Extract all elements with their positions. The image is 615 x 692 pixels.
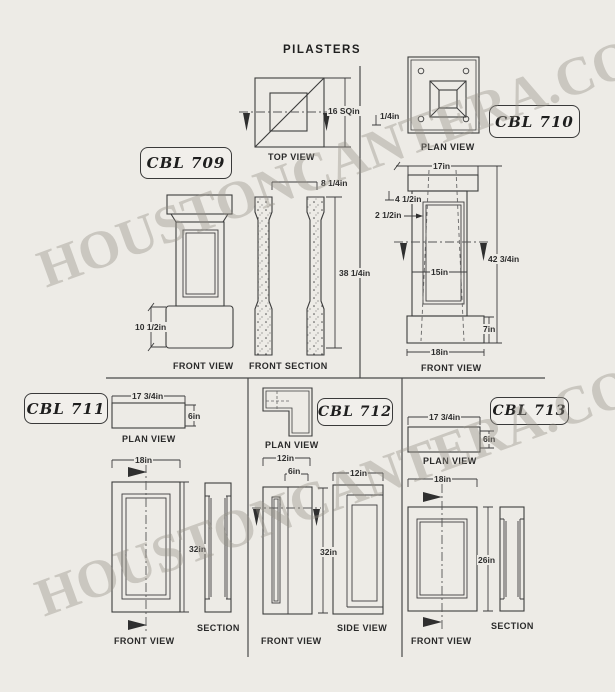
cut-arrow-bottom	[423, 617, 442, 627]
cut-arrow-top	[128, 467, 147, 477]
front-strip-inner	[274, 499, 278, 601]
taper-dashed-right	[456, 170, 464, 341]
base	[166, 306, 233, 348]
section-bar-right	[307, 197, 324, 355]
panel-outer	[423, 202, 464, 304]
cap	[408, 175, 478, 191]
catalog-page: PILASTERS CBL 709 CBL 710 CBL 711 CBL 71…	[0, 0, 615, 692]
dim-711-plan-depth: 6in	[187, 411, 201, 421]
view-label-side-view-712: SIDE VIEW	[337, 623, 387, 633]
bolt-hole	[418, 116, 424, 122]
panel-inner	[426, 205, 461, 301]
plan-hidden-lines	[266, 391, 290, 410]
base	[407, 316, 484, 343]
cbl709-front-section-drawing	[255, 182, 342, 355]
dim-711-width: 18in	[134, 455, 153, 465]
view-label-top-view-709: TOP VIEW	[268, 152, 315, 162]
cap	[167, 195, 232, 214]
view-label-front-view-712: FRONT VIEW	[261, 636, 322, 646]
dim-710-cap-height: 4 1/2in	[394, 194, 422, 204]
view-label-front-view-709: FRONT VIEW	[173, 361, 234, 371]
view-label-section-711: SECTION	[197, 623, 240, 633]
dim-711-plan-width: 17 3/4in	[131, 391, 164, 401]
diagonal-line	[255, 78, 324, 147]
dim-710-overall-height: 42 3/4in	[487, 254, 520, 264]
cbl713-drawing	[408, 417, 524, 631]
view-label-front-section-709: FRONT SECTION	[249, 361, 328, 371]
bolt-hole	[418, 68, 424, 74]
view-label-plan-view-712: PLAN VIEW	[265, 440, 319, 450]
dim-711-height: 32in	[188, 544, 207, 554]
pyramid-inner	[439, 90, 457, 108]
dim-712-height: 32in	[319, 547, 338, 557]
dim-710-panel-width: 15in	[430, 267, 449, 277]
model-label-cbl710: CBL 710	[489, 105, 580, 138]
view-label-front-view-711: FRONT VIEW	[114, 636, 175, 646]
plan-corner-outer	[263, 388, 312, 436]
cap-height-leader	[385, 191, 394, 200]
dim-710-edge: 1/4in	[379, 111, 400, 121]
bolt-hole	[463, 68, 469, 74]
drawing-canvas	[0, 0, 615, 692]
side-outer	[333, 485, 383, 614]
section-bar-left	[255, 197, 272, 355]
view-label-plan-view-713: PLAN VIEW	[423, 456, 477, 466]
front-outer	[263, 487, 312, 614]
dim-709-section-width: 8 1/4in	[320, 178, 348, 188]
cbl711-drawing	[112, 396, 231, 632]
cut-arrow-bottom	[128, 620, 147, 630]
plan-rect	[112, 403, 185, 428]
section-detail	[205, 496, 231, 599]
cut-arrow-left	[253, 509, 260, 526]
dim-712-width: 12in	[276, 453, 295, 463]
model-label-cbl711: CBL 711	[24, 393, 108, 424]
dim-709-area: 16 SQin	[327, 106, 361, 116]
model-label-cbl712: CBL 712	[317, 398, 393, 426]
front-strip-outer	[272, 497, 280, 603]
view-label-plan-view-711: PLAN VIEW	[122, 434, 176, 444]
view-label-plan-view-710: PLAN VIEW	[421, 142, 475, 152]
dim-712-side-width: 12in	[349, 468, 368, 478]
cut-arrow-left	[243, 113, 250, 131]
dim-709-base-height: 10 1/2in	[134, 322, 167, 332]
model-label-cbl709: CBL 709	[140, 147, 232, 179]
pyramid-corners	[430, 81, 466, 117]
wall-leader-arrow	[416, 214, 423, 219]
dim-710-base-width: 18in	[430, 347, 449, 357]
cut-arrow-top	[423, 492, 442, 502]
side-panel	[352, 505, 377, 601]
page-title: PILASTERS	[283, 44, 361, 56]
panel-inner	[126, 498, 166, 595]
dim-710-base-height: 7in	[482, 324, 496, 334]
view-label-front-view-710: FRONT VIEW	[421, 363, 482, 373]
panel-inner	[186, 233, 215, 294]
dim-713-plan-depth: 6in	[482, 434, 496, 444]
dim-712-face: 6in	[287, 466, 301, 476]
model-label-cbl713: CBL 713	[490, 397, 569, 425]
dim-710-wall: 2 1/2in	[374, 210, 402, 220]
view-label-section-713: SECTION	[491, 621, 534, 631]
body	[412, 191, 467, 316]
dim-713-plan-width: 17 3/4in	[428, 412, 461, 422]
dim-713-height: 26in	[477, 555, 496, 565]
cut-arrow-right	[480, 243, 487, 261]
view-label-front-view-713: FRONT VIEW	[411, 636, 472, 646]
cut-arrow-left	[400, 243, 407, 261]
plan-rect	[408, 427, 480, 452]
section-detail	[500, 519, 524, 599]
cbl710-plan-view-drawing	[372, 57, 479, 133]
dim-713-width: 18in	[433, 474, 452, 484]
plate-outer	[408, 57, 479, 133]
cap-flare	[171, 214, 228, 222]
cut-arrow-right	[313, 509, 320, 526]
dim-width-line	[272, 182, 317, 190]
dim-710-top-width: 17in	[432, 161, 451, 171]
plan-corner-inner	[266, 391, 309, 433]
dim-709-section-height: 38 1/4in	[338, 268, 371, 278]
panel-outer	[183, 230, 218, 297]
